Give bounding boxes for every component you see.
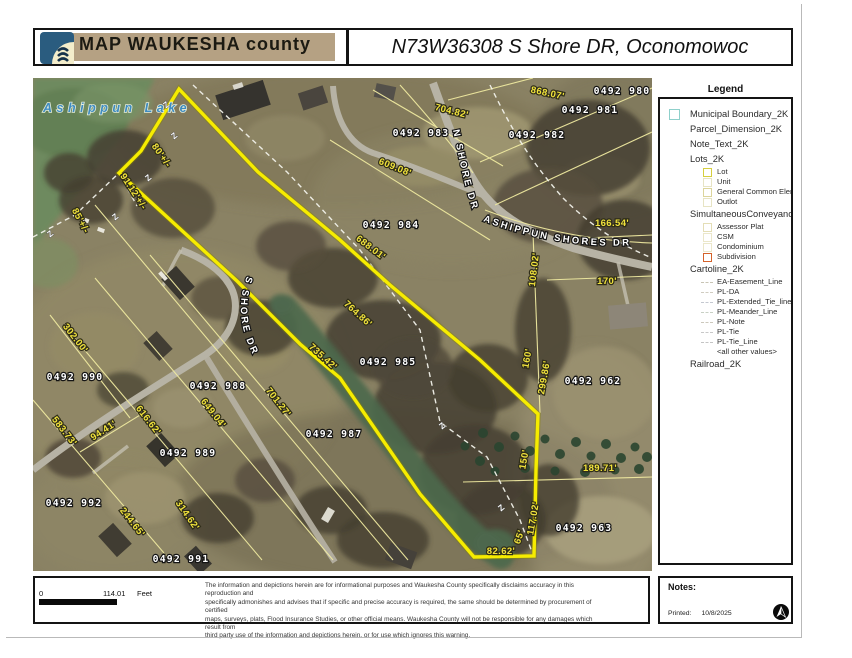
legend-item-label: Subdivision xyxy=(717,252,756,262)
north-arrow-icon xyxy=(772,603,790,621)
legend-item-label: Railroad_2K xyxy=(690,357,741,372)
parcel-id-label: 0492 981 xyxy=(562,105,619,116)
legend-item: Parcel_Dimension_2K xyxy=(660,122,791,137)
legend-item-label: PL-Tie xyxy=(717,327,739,337)
legend-item-label: PL-Note xyxy=(717,317,745,327)
legend-item-label: EA-Easement_Line xyxy=(717,277,782,287)
scale-value-label: 114.01 xyxy=(103,589,125,598)
legend-item-label: Lots_2K xyxy=(690,152,724,167)
legend-item: Cartoline_2K xyxy=(660,262,791,277)
legend-item-label: Cartoline_2K xyxy=(690,262,744,277)
legend-item-label: Parcel_Dimension_2K xyxy=(690,122,782,137)
waukesha-county-logo-icon xyxy=(39,32,77,65)
parcel-id-label: 0492 962 xyxy=(565,376,622,387)
legend-item: PL-Note xyxy=(660,317,791,327)
page-title: N73W36308 S Shore DR, Oconomowoc xyxy=(392,36,749,59)
legend-item-label: PL-DA xyxy=(717,287,739,297)
map-canvas: N SHORE DR ASHIPPUN SHORES DR S SHORE DR… xyxy=(33,78,652,571)
parcel-dimension-label: 82.62' xyxy=(487,546,515,557)
scale-zero-label: 0 xyxy=(39,589,43,598)
legend-swatch-box-icon xyxy=(703,233,712,242)
legend-item: PL-Extended_Tie_line xyxy=(660,297,791,307)
legend-item: PL-Meander_Line xyxy=(660,307,791,317)
legend-item: Lot xyxy=(660,167,791,177)
printed-row: Printed:10/8/2025 xyxy=(668,610,732,617)
page-border-bottom xyxy=(6,637,802,638)
scale-unit-label: Feet xyxy=(137,589,152,598)
legend-item: Lots_2K xyxy=(660,152,791,167)
parcel-id-label: 0492 988 xyxy=(190,381,247,392)
legend-item-label: Municipal Boundary_2K xyxy=(690,107,788,122)
legend-swatch-box-icon xyxy=(703,168,712,177)
legend-item: EA-Easement_Line xyxy=(660,277,791,287)
legend-item: SimultaneousConveyance xyxy=(660,207,791,222)
parcel-id-label: 0492 963 xyxy=(556,523,613,534)
legend-swatch-line-icon xyxy=(701,302,713,303)
legend-item: Note_Text_2K xyxy=(660,137,791,152)
parcel-id-label: 0492 980 xyxy=(594,86,651,97)
legend-item: CSM xyxy=(660,232,791,242)
legend-item-label: Condominium xyxy=(717,242,764,252)
legend-item-label: Note_Text_2K xyxy=(690,137,748,152)
legend-swatch-box-icon xyxy=(669,109,680,120)
legend-title: Legend xyxy=(658,84,793,95)
legend-item: Assessor Plat xyxy=(660,222,791,232)
scale-bar xyxy=(39,599,117,605)
parcel-id-label: 0492 991 xyxy=(153,554,210,565)
disclaimer-line: maps, surveys, plats, Flood Insurance St… xyxy=(205,616,605,633)
legend-swatch-box-icon xyxy=(703,198,712,207)
parcel-id-label: 0492 987 xyxy=(306,429,363,440)
legend-item: PL-Tie xyxy=(660,327,791,337)
parcel-id-label: 0492 990 xyxy=(47,372,104,383)
legend-item: General Common Element xyxy=(660,187,791,197)
parcel-dimension-label: 189.71' xyxy=(583,463,617,474)
legend-item: Railroad_2K xyxy=(660,357,791,372)
legend-swatch-line-icon xyxy=(701,332,713,333)
disclaimer-line: specifically admonishes and advises that… xyxy=(205,599,605,616)
legend-item-label: <all other values> xyxy=(717,347,777,357)
legend-panel: Municipal Boundary_2KParcel_Dimension_2K… xyxy=(658,97,793,565)
disclaimer-text: The information and depictions herein ar… xyxy=(205,582,605,641)
legend-item: <all other values> xyxy=(660,347,791,357)
printed-label: Printed: xyxy=(668,610,691,617)
parcel-id-label: 0492 989 xyxy=(160,448,217,459)
legend-item-label: CSM xyxy=(717,232,734,242)
aerial-map: N SHORE DR ASHIPPUN SHORES DR S SHORE DR… xyxy=(33,78,652,571)
printed-date: 10/8/2025 xyxy=(701,610,731,617)
legend-list: Municipal Boundary_2KParcel_Dimension_2K… xyxy=(660,107,791,372)
legend-item-label: PL-Extended_Tie_line xyxy=(717,297,791,307)
legend-swatch-box-icon xyxy=(703,188,712,197)
legend-item-label: Lot xyxy=(717,167,728,177)
parcel-id-label: 0492 983 xyxy=(393,128,450,139)
legend-swatch-line-icon xyxy=(701,322,713,323)
notes-label: Notes: xyxy=(668,582,696,592)
legend-item-label: Assessor Plat xyxy=(717,222,763,232)
legend-swatch-line-icon xyxy=(701,292,713,293)
disclaimer-line: The information and depictions herein ar… xyxy=(205,582,605,599)
legend-item-label: General Common Element xyxy=(717,187,791,197)
map-print-page: { "header": { "logo_text": "MAP WAUKESHA… xyxy=(0,0,852,658)
parcel-id-label: 0492 992 xyxy=(46,498,103,509)
parcel-dimension-label: 170' xyxy=(597,276,617,287)
logo-box: MAP WAUKESHA county xyxy=(33,28,348,66)
legend-item-label: PL-Tie_Line xyxy=(717,337,758,347)
parcel-id-label: 0492 984 xyxy=(363,220,420,231)
legend-item-label: Outlot xyxy=(717,197,737,207)
page-border-right xyxy=(801,4,802,637)
legend-item: Subdivision xyxy=(660,252,791,262)
legend-item: Condominium xyxy=(660,242,791,252)
legend-item: Outlot xyxy=(660,197,791,207)
legend-item-label: PL-Meander_Line xyxy=(717,307,777,317)
legend-swatch-box-icon xyxy=(703,178,712,187)
notes-box: Notes: Printed:10/8/2025 xyxy=(658,576,793,624)
parcel-id-label: 0492 982 xyxy=(509,130,566,141)
legend-item: PL-DA xyxy=(660,287,791,297)
title-box: N73W36308 S Shore DR, Oconomowoc xyxy=(347,28,793,66)
legend-swatch-box-icon xyxy=(703,223,712,232)
app-logo-text: MAP WAUKESHA county xyxy=(79,34,311,55)
legend-swatch-line-icon xyxy=(701,342,713,343)
legend-swatch-box-icon xyxy=(703,253,712,262)
legend-item-label: Unit xyxy=(717,177,731,187)
parcel-id-label: 0492 985 xyxy=(360,357,417,368)
legend-item: Municipal Boundary_2K xyxy=(660,107,791,122)
legend-item: PL-Tie_Line xyxy=(660,337,791,347)
legend-item-label: SimultaneousConveyance xyxy=(690,207,791,222)
legend-swatch-box-icon xyxy=(703,243,712,252)
legend-swatch-line-icon xyxy=(701,312,713,313)
scale-disclaimer-box: 0 114.01 Feet The information and depict… xyxy=(33,576,650,624)
legend-swatch-line-icon xyxy=(701,282,713,283)
parcel-dimension-label: 166.54' xyxy=(595,218,629,229)
legend-item: Unit xyxy=(660,177,791,187)
